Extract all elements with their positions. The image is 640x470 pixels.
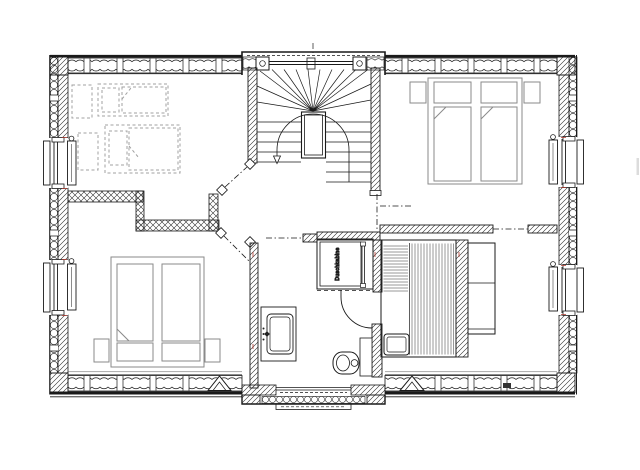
stair-wall-cap: [370, 191, 381, 196]
insulation-band-right: [569, 315, 577, 373]
mattress: [117, 264, 153, 341]
mattress: [162, 264, 200, 341]
dormer-bottom-post: [242, 395, 260, 404]
stair-treads: [257, 122, 371, 182]
nightstand: [94, 339, 109, 362]
bathroom-door-post: [303, 234, 317, 242]
radiator-valve: [69, 259, 74, 264]
pillow: [117, 343, 153, 361]
window-left-upper: [44, 136, 77, 188]
nightstand: [72, 85, 92, 118]
wall-left: [58, 75, 68, 138]
sauna-room: [380, 225, 557, 357]
bedroom-bottom-left: [94, 257, 220, 367]
shower-door: [362, 244, 365, 285]
interior-wall: [68, 191, 143, 202]
window-jamb: [52, 260, 64, 265]
staircase: [248, 68, 381, 196]
corner-post: [50, 373, 68, 393]
nightstand: [78, 133, 98, 170]
faucet: [264, 331, 270, 337]
double-bed: [428, 78, 522, 184]
bathroom-door-swing: [341, 290, 372, 328]
scan-artifact: [637, 158, 640, 175]
shower-cabin: Duschkabine: [317, 239, 373, 291]
sauna-wall-right: [456, 240, 468, 357]
vent-mark: [503, 383, 511, 388]
door-marker-bedroom-top-left: [225, 167, 247, 187]
window-jamb: [52, 184, 64, 189]
double-bed: [111, 257, 204, 367]
stair-wall-left: [248, 68, 257, 163]
bathroom: Duschkabine: [242, 232, 385, 410]
interior-wall: [136, 220, 219, 231]
shower-label: Duschkabine: [335, 247, 341, 280]
door-marker-bedroom-bottom-left: [224, 236, 249, 261]
corner-post: [557, 373, 575, 393]
windows: [44, 135, 584, 316]
bedroom-top-right: [410, 78, 540, 184]
closet: [468, 243, 495, 334]
bedroom-top-left: [72, 84, 180, 173]
radiator-valve: [69, 136, 74, 141]
sauna-room-wall-top: [528, 225, 557, 233]
sauna-bench-boards-horizontal: [384, 246, 409, 291]
dormer-bottom-insulation: [262, 397, 365, 404]
sauna-bench-boards-vertical: [412, 244, 454, 355]
washbasin: [261, 307, 296, 361]
bathroom-wall-bottom: [242, 385, 276, 395]
single-bed: [98, 84, 168, 116]
radiator-valve: [551, 135, 556, 140]
window-right-upper: [549, 135, 584, 188]
wall-right: [559, 187, 569, 265]
blanket-fold: [117, 329, 129, 341]
insulation-band-left: [50, 315, 58, 373]
window-right-lower: [549, 262, 584, 316]
wall-left: [58, 188, 68, 260]
stair-newel-inner: [305, 115, 323, 155]
floor-plan-drawing: Duschkabine: [0, 0, 640, 470]
stair-wall-right: [371, 68, 380, 192]
dormer-bottom-post: [367, 395, 385, 404]
exterior-walls: [50, 55, 577, 397]
stair-newel: [302, 112, 326, 158]
single-bed: [105, 125, 180, 173]
nightstand: [205, 339, 220, 362]
stair-direction-arrow: [274, 156, 281, 164]
interior-wall: [209, 194, 218, 231]
blanket-fold: [129, 146, 139, 158]
pillow: [434, 82, 471, 103]
sauna: [381, 240, 456, 357]
mattress: [481, 107, 517, 181]
window-left-lower: [44, 259, 77, 315]
mattress: [434, 107, 471, 181]
nightstand: [524, 82, 540, 103]
dormer-top: [242, 43, 385, 75]
insulation-band-left: [50, 188, 58, 260]
toilet: [333, 338, 372, 376]
wall-right: [559, 315, 569, 373]
bathroom-wall-left: [250, 243, 258, 388]
window-sill: [577, 140, 584, 184]
wall-right: [559, 75, 569, 137]
nightstand: [410, 82, 426, 103]
toilet-shelf: [360, 338, 372, 376]
window-jamb: [52, 311, 64, 316]
window-sill: [577, 268, 584, 312]
floor-plan-page: Duschkabine: [0, 0, 640, 470]
wall-left: [58, 315, 68, 373]
blanket-fold: [122, 88, 131, 99]
window-jamb: [563, 183, 575, 188]
sauna-room-wall-top: [380, 225, 493, 233]
bathroom-wall-bottom: [351, 385, 385, 395]
blanket-fold: [434, 107, 493, 119]
insulation-band-right: [569, 187, 577, 265]
pillow: [481, 82, 517, 103]
dormer-bottom-window: [276, 388, 351, 391]
stair-winders: [257, 70, 371, 112]
window-jamb: [52, 138, 64, 143]
pillow: [162, 343, 200, 361]
toilet-flush: [351, 360, 358, 367]
radiator-valve: [551, 262, 556, 267]
